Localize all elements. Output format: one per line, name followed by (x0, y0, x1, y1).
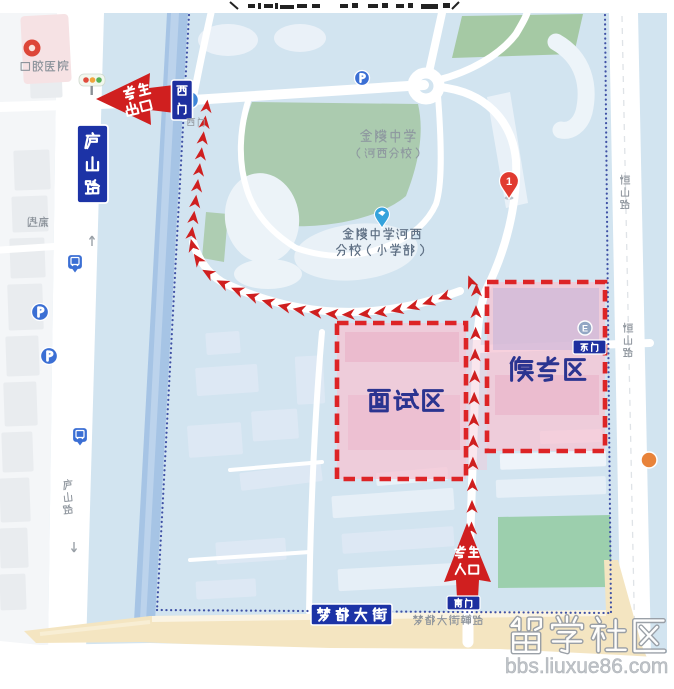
svg-text:1: 1 (506, 176, 512, 188)
svg-text:E: E (582, 324, 588, 334)
svg-text:bbs.liuxue86.com: bbs.liuxue86.com (505, 655, 668, 678)
